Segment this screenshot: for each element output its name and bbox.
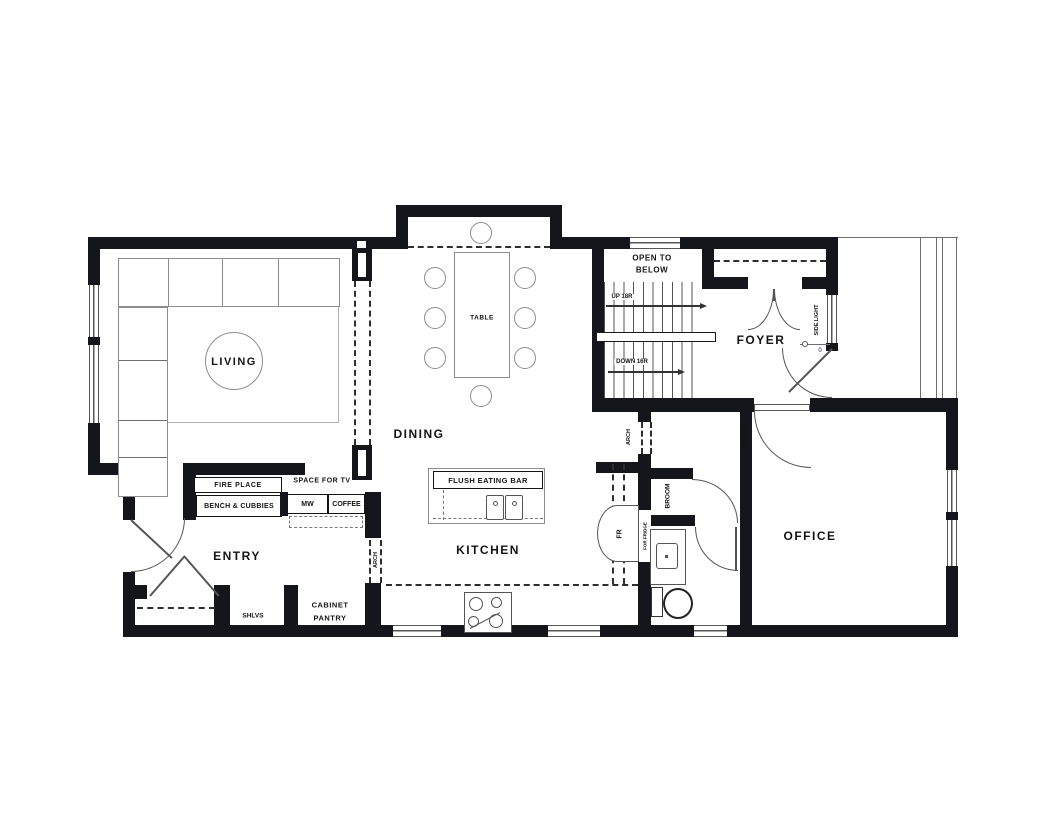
room-label-entry: ENTRY [213, 549, 261, 563]
wall-bay-right [550, 205, 562, 249]
porch-edge-top [838, 237, 958, 238]
open-below-line2: BELOW [636, 266, 668, 275]
dining-chair-r2 [514, 307, 536, 329]
sofa-seam-5 [119, 420, 167, 421]
stair-up-label: UP 18R [610, 294, 635, 300]
porch-step-1 [920, 238, 921, 399]
eating-bar-box: FLUSH EATING BAR [433, 471, 543, 489]
opening-entry-arch-2 [380, 540, 382, 583]
stair-down-arrow-head [678, 369, 685, 375]
wall-office-top [810, 398, 958, 412]
opening-hall-arch-1 [641, 422, 643, 454]
front-door-mark: 0 [818, 348, 821, 354]
stair-down-arrow-line [608, 371, 680, 373]
bath-door-swing [695, 527, 738, 571]
eating-bar-label: FLUSH EATING BAR [448, 476, 528, 485]
dining-chair-r1 [514, 267, 536, 289]
sink-basin-left [486, 495, 504, 520]
opening-hall-arch-2 [650, 422, 652, 454]
room-label-living: LIVING [211, 356, 257, 368]
table-label: TABLE [470, 315, 494, 322]
floor-plan: FIRE PLACE BENCH & CUBBIES SPACE FOR TV … [0, 0, 1056, 816]
coffee-counter [289, 516, 363, 528]
front-door-knob [802, 341, 808, 347]
sofa-seam-4 [119, 360, 167, 361]
foyer-door-center [773, 289, 775, 301]
wall-top-right [680, 237, 838, 249]
foyer-door-right-swing [774, 289, 800, 330]
burner-2 [491, 597, 502, 608]
window-side-light [827, 295, 837, 343]
sink-basin-right [505, 495, 523, 520]
stub-entry-arch-top [365, 492, 381, 538]
bay-opening [408, 246, 550, 248]
fridge-label: FR [617, 529, 624, 538]
porch-step-2 [936, 238, 937, 399]
pantry-line1: CABINET [312, 601, 349, 610]
sofa-left [118, 307, 168, 497]
office-door-swing [754, 411, 811, 468]
tv-label: SPACE FOR TV [293, 478, 350, 485]
dining-chair-l2 [424, 307, 446, 329]
closet-divider [284, 585, 298, 637]
window-bath [694, 625, 727, 637]
stub-slot-bottom [358, 450, 366, 476]
stair-down-label: DOWN 16R [614, 359, 650, 365]
window-stair-top [630, 237, 682, 249]
fireplace-label: FIRE PLACE [214, 482, 262, 489]
opening-living-dining-1 [354, 281, 356, 445]
porch-edge-right [956, 237, 957, 399]
closet-jamb-1 [131, 585, 147, 599]
wall-office-right-b [946, 566, 958, 637]
side-light-label: SIDE LIGHT [814, 305, 820, 336]
counter-dash-bottom [386, 584, 638, 586]
wall-top-mid [562, 237, 632, 249]
wall-stair-bottom [592, 398, 754, 412]
broom-label: BROOM [665, 484, 672, 509]
opening-entry-arch-1 [369, 540, 371, 583]
dining-chair-r3 [514, 347, 536, 369]
dining-chair-bottom [470, 385, 492, 407]
wall-bottom [123, 625, 958, 637]
wall-hall-a [638, 412, 651, 422]
window-living-2 [89, 345, 99, 423]
microwave-label: MW [301, 501, 313, 508]
dining-chair-l3 [424, 347, 446, 369]
arch-hall-label: ARCH [626, 429, 632, 445]
closet-rod [137, 607, 215, 609]
wall-slot [357, 241, 366, 248]
open-below-line1: OPEN TO [632, 254, 671, 263]
wall-office-mullion [946, 512, 958, 520]
window-office-2 [947, 520, 957, 566]
wall-fireplace [183, 463, 305, 475]
wall-foyer-right-a [826, 249, 838, 295]
sink-drain-left [493, 501, 498, 506]
room-label-kitchen: KITCHEN [456, 543, 520, 557]
sofa-seam-3 [278, 259, 279, 306]
foyer-door-left-swing [748, 289, 774, 330]
pantry-line2: PANTRY [314, 614, 347, 623]
foyer-porch-dash [714, 260, 826, 262]
window-living-1 [89, 285, 99, 337]
island-dash-v [443, 490, 444, 520]
toilet-tank [651, 587, 663, 617]
bath-sink-drain [665, 555, 668, 558]
wall-stair-left [592, 249, 604, 398]
dining-chair-l1 [424, 267, 446, 289]
bath-door-leaf [735, 527, 737, 571]
dining-chair-top [470, 222, 492, 244]
sink-drain-right [512, 501, 517, 506]
microwave-box: MW [287, 494, 328, 514]
wall-left-mullion [88, 337, 100, 345]
wall-top-left [88, 237, 402, 249]
wall-bay-top [396, 205, 562, 217]
fridge-note-label: FOR FRIDGE [643, 522, 648, 550]
window-kitchen-1 [393, 625, 441, 637]
bench-box: BENCH & CUBBIES [196, 495, 282, 517]
room-label-foyer: FOYER [737, 333, 786, 347]
porch-step-3 [942, 238, 943, 399]
toilet-bowl [663, 588, 693, 619]
stair-up-arrow-line [606, 305, 702, 307]
window-office-1 [947, 470, 957, 512]
fireplace-box: FIRE PLACE [194, 477, 282, 493]
window-kitchen-2 [548, 625, 600, 637]
sofa-seam-6 [119, 457, 167, 458]
stub-entry-arch-bottom [365, 583, 381, 637]
burner-1 [469, 597, 483, 611]
bench-label: BENCH & CUBBIES [204, 503, 274, 510]
stair-rail [596, 332, 716, 342]
sofa-seam-2 [222, 259, 223, 306]
wall-office-right-a [946, 410, 958, 470]
wall-left-upper [88, 237, 100, 285]
stair-up-arrow-head [700, 303, 707, 309]
wall-foyer-door-left [702, 277, 748, 289]
coffee-label: COFFEE [332, 501, 360, 508]
french-door-label: - FRENCH [742, 424, 748, 450]
sofa-seam-1 [168, 259, 169, 306]
wall-broom-top [651, 468, 693, 479]
wall-broom-bottom [651, 515, 695, 526]
opening-living-dining-2 [369, 281, 371, 445]
broom-door-swing [692, 479, 738, 523]
arch-entry-label: ARCH [373, 552, 379, 568]
sofa-top [118, 258, 340, 307]
stub-slot-top [358, 253, 366, 277]
room-label-dining: DINING [394, 427, 445, 441]
room-label-office: OFFICE [784, 529, 837, 543]
shelves-label: SHLVS [242, 613, 263, 620]
office-door-panel [754, 404, 810, 411]
coffee-box: COFFEE [328, 494, 365, 514]
